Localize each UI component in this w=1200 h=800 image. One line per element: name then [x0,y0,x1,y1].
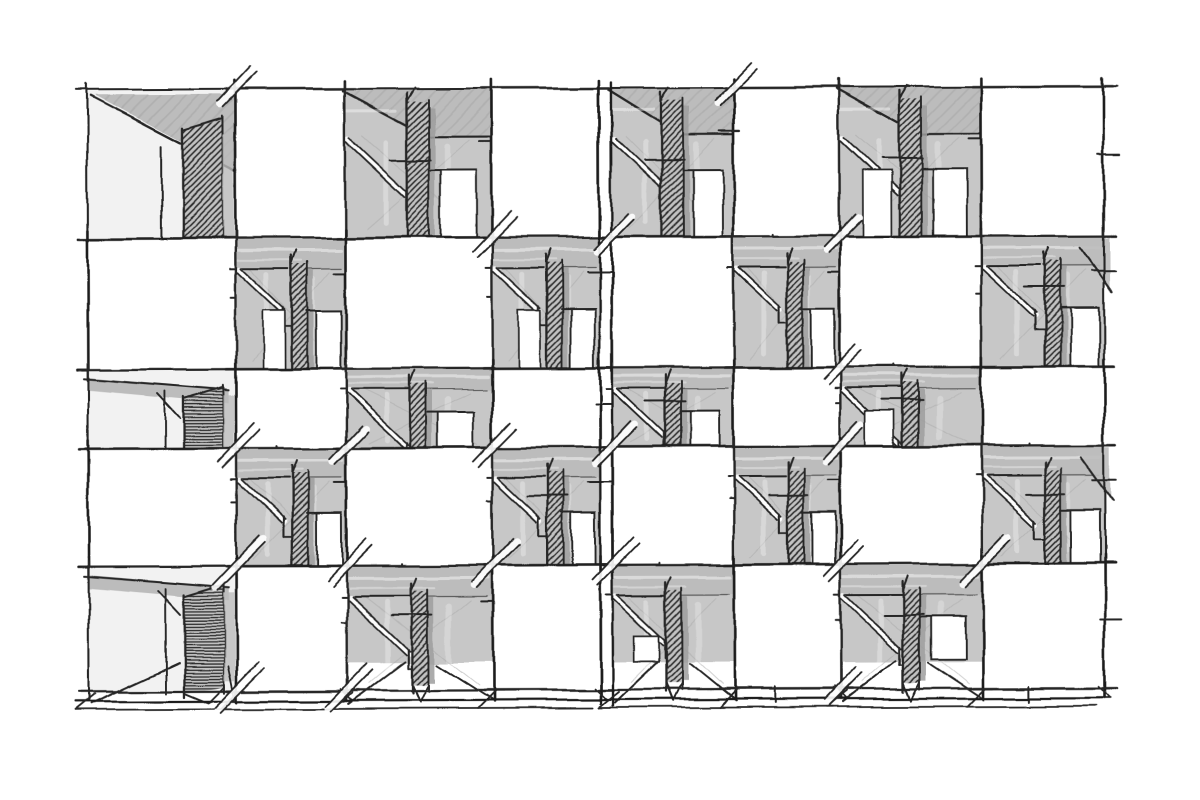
soffit-shade [485,237,599,267]
partition-fin [184,582,224,703]
central-seam [599,82,613,706]
partition-fin [787,248,809,380]
facade-cell-recess [832,361,992,460]
soffit-shade [486,447,600,477]
facade-cell-box [719,555,859,707]
soffit-shade [229,238,345,268]
facade-cell-box [601,227,746,379]
facade-cell-box [719,78,852,249]
facade-cell-box [226,360,358,461]
partition-fin [546,249,568,381]
partition-fin [407,87,436,250]
facade-cell-recess [725,230,852,380]
partition-fin [899,86,928,249]
sketch-strokes [73,61,1122,714]
facade-cell-box [972,357,1116,459]
facade-cell-recess [79,83,246,252]
facade-cell-recess [227,232,358,382]
facade-cell-box [971,77,1121,247]
facade-cell-box [77,229,253,381]
sketch-page [0,0,1200,800]
facade-cell-box [967,554,1123,707]
facade-cell-recess [483,231,612,381]
partition-fin [1044,247,1066,379]
facade-cell-recess [604,361,744,459]
facade-cell-recess [605,558,746,702]
soffit-shade [230,448,346,478]
facade-cell-box [225,80,358,249]
facade-cell-recess [337,82,504,251]
partition-fin [661,87,690,250]
facade-cell-recess [726,440,852,577]
partition-fin [182,115,222,251]
partition-fin [291,250,313,382]
facade-cell-recess [973,229,1116,379]
facade-sketch-drawing [0,0,1200,800]
